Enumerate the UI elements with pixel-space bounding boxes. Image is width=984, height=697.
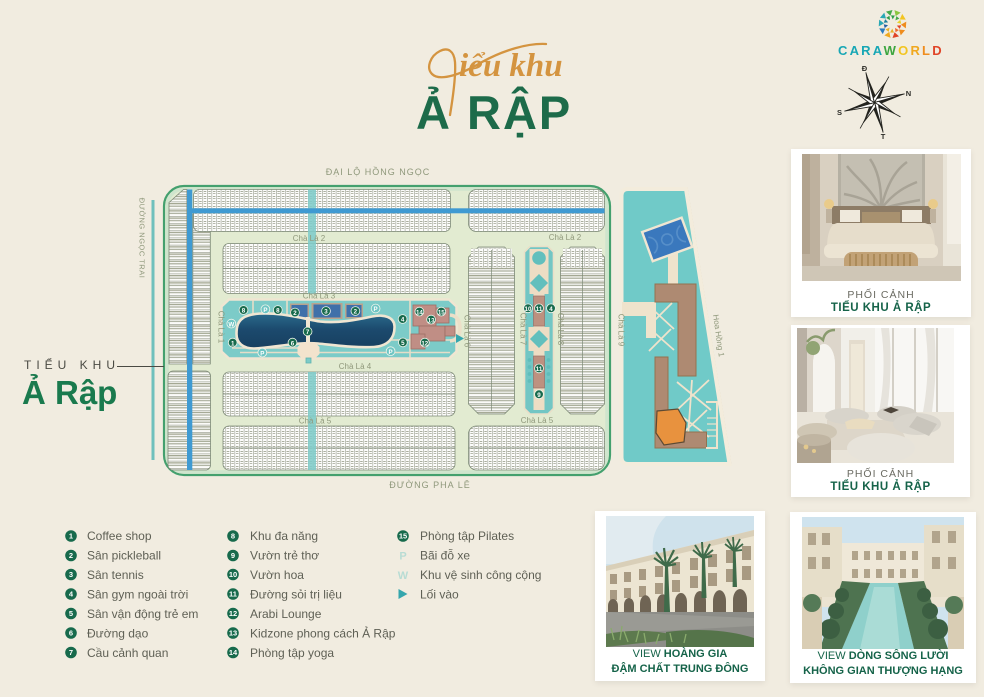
- svg-text:W: W: [398, 570, 409, 582]
- svg-text:14: 14: [229, 648, 238, 657]
- svg-text:3: 3: [69, 570, 73, 579]
- svg-text:9: 9: [231, 551, 235, 560]
- svg-text:Sân vận động trẻ em: Sân vận động trẻ em: [87, 607, 198, 621]
- svg-text:Phòng tập yoga: Phòng tập yoga: [250, 646, 334, 660]
- svg-text:Lối vào: Lối vào: [420, 588, 459, 602]
- svg-text:12: 12: [229, 609, 237, 618]
- svg-text:Sân gym ngoài trời: Sân gym ngoài trời: [87, 588, 188, 602]
- svg-text:Arabi Lounge: Arabi Lounge: [250, 607, 322, 621]
- svg-text:11: 11: [229, 590, 237, 599]
- svg-text:Khu vệ sinh công cộng: Khu vệ sinh công cộng: [420, 568, 541, 582]
- svg-text:Coffee shop: Coffee shop: [87, 529, 152, 543]
- svg-text:Vườn trẻ thơ: Vườn trẻ thơ: [250, 549, 319, 563]
- svg-text:1: 1: [69, 532, 73, 541]
- svg-text:10: 10: [229, 570, 237, 579]
- svg-text:Kidzone phong cách Ả Rập: Kidzone phong cách Ả Rập: [250, 626, 396, 641]
- svg-text:Đường dạo: Đường dạo: [87, 627, 149, 641]
- svg-text:Khu đa năng: Khu đa năng: [250, 529, 318, 543]
- svg-text:2: 2: [69, 551, 73, 560]
- svg-text:8: 8: [231, 532, 235, 541]
- svg-text:Vườn hoa: Vườn hoa: [250, 568, 304, 582]
- svg-text:5: 5: [69, 609, 73, 618]
- svg-text:P: P: [399, 551, 406, 563]
- svg-text:Cầu cảnh quan: Cầu cảnh quan: [87, 646, 168, 660]
- svg-text:6: 6: [69, 629, 73, 638]
- svg-text:13: 13: [229, 629, 237, 638]
- svg-text:15: 15: [399, 532, 407, 541]
- svg-text:Sân pickleball: Sân pickleball: [87, 549, 161, 563]
- svg-text:7: 7: [69, 648, 73, 657]
- svg-text:Đường sỏi trị liệu: Đường sỏi trị liệu: [250, 588, 342, 602]
- svg-text:Sân tennis: Sân tennis: [87, 568, 144, 582]
- svg-text:Bãi đỗ xe: Bãi đỗ xe: [420, 548, 470, 563]
- svg-text:Phòng tập Pilates: Phòng tập Pilates: [420, 529, 514, 543]
